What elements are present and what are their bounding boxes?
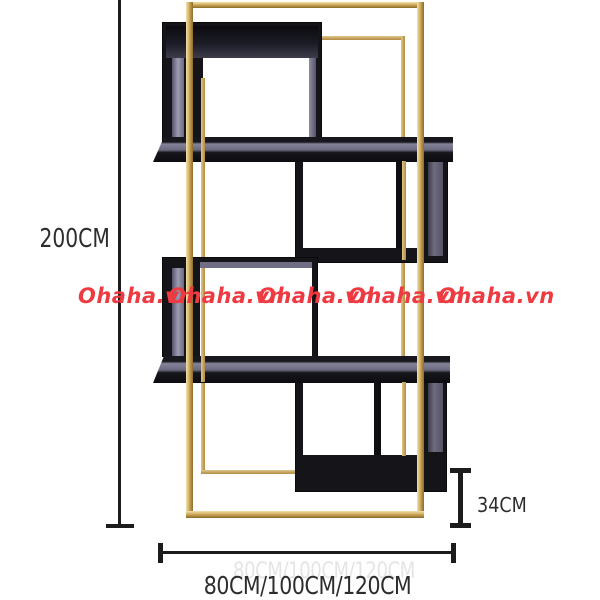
box1-right-panel — [309, 58, 316, 137]
watermark-text: Ohaha.vn — [168, 284, 245, 308]
gold-frame-back-rail-segment-1 — [201, 78, 205, 162]
width-dimension-line — [159, 551, 456, 554]
gold-frame-front-rail-left — [186, 2, 193, 518]
shelf-band-1 — [153, 137, 453, 162]
watermark-text: Ohaha.vn — [348, 284, 425, 308]
shelf-band-3 — [153, 356, 450, 383]
box3-left-panel — [172, 268, 184, 357]
depth-dimension-top-cap — [450, 468, 471, 473]
width-label: 80CM/100CM/120CM — [182, 573, 432, 598]
box1-interior — [203, 58, 310, 137]
box4-interior — [303, 383, 418, 455]
gold-frame-front-rail-right — [417, 2, 424, 518]
product-image: 200CM — [0, 0, 600, 600]
shelf-box-4 — [295, 370, 447, 492]
box2-side-panel — [428, 150, 443, 256]
watermark-text: Ohaha.vn — [258, 284, 335, 308]
width-dimension-left-cap — [158, 543, 163, 563]
watermark-text: Ohaha.vn — [438, 284, 515, 308]
box3-interior — [200, 268, 312, 357]
watermark-row: Ohaha.vn Ohaha.vn Ohaha.vn Ohaha.vn Ohah… — [78, 284, 528, 308]
gold-frame-back-rail-segment-3 — [402, 161, 406, 260]
gold-frame-front-rail-top — [186, 2, 424, 8]
box4-side-panel — [428, 378, 443, 452]
depth-dimension-line — [458, 470, 463, 526]
box1-left-panel — [172, 58, 184, 137]
depth-label: 34CM — [477, 495, 527, 515]
depth-dimension-bottom-cap — [450, 523, 471, 528]
gold-frame-front-rail-bottom — [186, 511, 424, 518]
watermark-text: Ohaha.vn — [78, 284, 155, 308]
box4-back-edge — [374, 383, 381, 455]
gold-frame-back-rail-segment-4 — [402, 382, 406, 456]
width-dimension-right-cap — [451, 543, 456, 563]
